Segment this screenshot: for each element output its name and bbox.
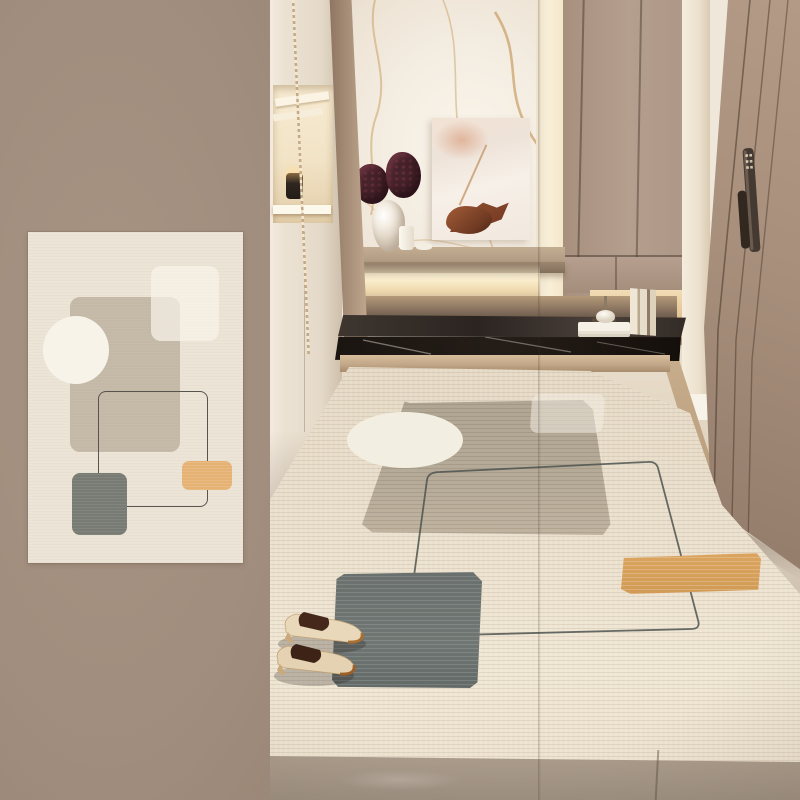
smart-lock-handle	[734, 148, 760, 253]
heeled-mule-shoes	[270, 598, 390, 698]
white-book-stack	[578, 322, 630, 331]
bell-ornament	[596, 310, 615, 323]
wardrobe-seam	[636, 0, 643, 258]
panel-divider-shadow	[538, 0, 541, 800]
swatch-slate-square	[72, 473, 127, 535]
swatch-light-square	[151, 266, 219, 341]
swatch-orange-rectangle	[182, 461, 232, 490]
small-white-cup	[399, 226, 414, 250]
swatch-white-circle	[43, 316, 109, 384]
screenshot-root	[0, 0, 800, 800]
flower-cluster	[386, 152, 421, 198]
rug-orange-rectangle	[621, 553, 761, 594]
wardrobe-seam	[577, 0, 584, 258]
cabinet-door-seam	[615, 257, 617, 293]
niche-shelf-board	[275, 91, 330, 106]
entryway-photo	[270, 0, 800, 800]
tile-sheen	[310, 765, 490, 795]
swatch-panel	[0, 0, 270, 800]
small-white-dish	[416, 243, 432, 250]
rug-design-swatch	[28, 232, 243, 563]
standing-books	[630, 288, 656, 336]
wall-recess-shadow	[347, 296, 677, 318]
